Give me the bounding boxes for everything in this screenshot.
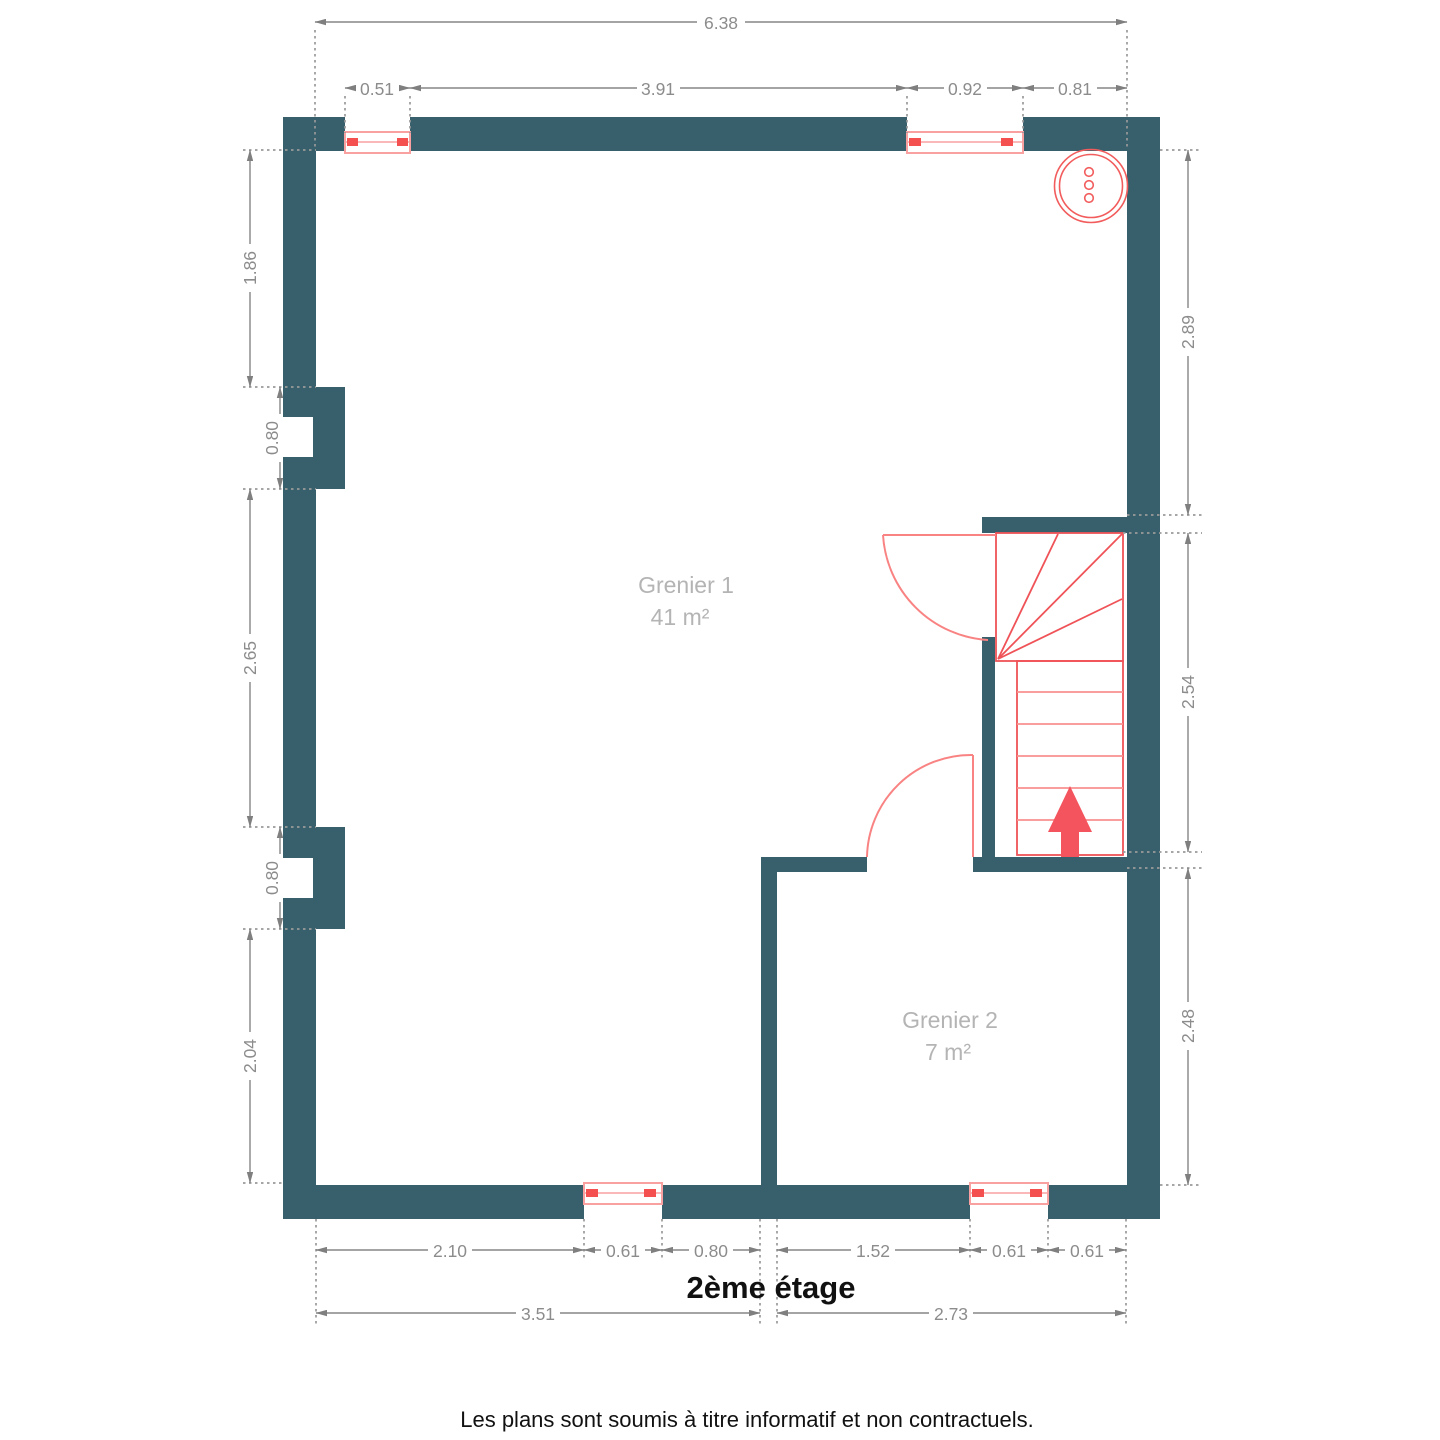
- dim-label: 2.48: [1178, 1009, 1198, 1043]
- stairs-up-arrow-icon: [1048, 786, 1092, 857]
- dimension-lines: 6.38 0.51 3.91 0.92 0.81 1.86 0.80 2.65 …: [240, 12, 1198, 1324]
- staircase: [996, 533, 1123, 857]
- extension-lines: [243, 30, 1202, 1324]
- dim-label: 0.92: [948, 79, 982, 99]
- dim-label: 2.10: [433, 1241, 467, 1261]
- window-icon-top-left: [345, 132, 410, 153]
- floor-title: 2ème étage: [687, 1270, 856, 1306]
- wall-partition-grenier: [761, 857, 777, 1219]
- dim-label-top-total: 6.38: [704, 13, 738, 33]
- wall-stair-left: [982, 637, 995, 872]
- chimney-breast-lower-recess: [281, 858, 313, 898]
- doors: [867, 535, 996, 857]
- floor-plan-page: 6.38 0.51 3.91 0.92 0.81 1.86 0.80 2.65 …: [0, 0, 1440, 1440]
- wall-bottom-segment-2: [662, 1185, 970, 1219]
- window-icon-bottom-right: [970, 1183, 1048, 1204]
- window-icon-top-right: [907, 132, 1023, 153]
- dim-label: 0.61: [992, 1241, 1026, 1261]
- room-name-grenier1: Grenier 1: [638, 572, 734, 598]
- dim-label: 0.80: [694, 1241, 728, 1261]
- dim-label: 1.52: [856, 1241, 890, 1261]
- disclaimer-text: Les plans sont soumis à titre informatif…: [460, 1407, 1034, 1433]
- wall-right: [1127, 117, 1160, 1219]
- chimney-breast-lower: [316, 827, 345, 929]
- room-labels: Grenier 1 41 m² Grenier 2 7 m²: [638, 572, 998, 1065]
- dim-label: 0.51: [360, 79, 394, 99]
- dim-label: 2.65: [240, 641, 260, 675]
- dim-label: 0.81: [1058, 79, 1092, 99]
- wall-bottom-segment-3: [1048, 1185, 1160, 1219]
- door-swing-stair: [883, 535, 996, 640]
- dim-label: 0.80: [262, 421, 282, 455]
- room-area-grenier1: 41 m²: [651, 604, 710, 630]
- wall-stair-top: [982, 517, 1127, 533]
- dim-label: 3.51: [521, 1304, 555, 1324]
- dim-label: 1.86: [240, 251, 260, 285]
- chimney-breast-upper-recess: [281, 417, 313, 457]
- flue-symbol: [1055, 150, 1128, 223]
- room-name-grenier2: Grenier 2: [902, 1007, 998, 1033]
- walls: [281, 117, 1160, 1219]
- wall-grenier2-top: [761, 857, 867, 872]
- dim-label: 0.80: [262, 861, 282, 895]
- floor-plan-drawing: 6.38 0.51 3.91 0.92 0.81 1.86 0.80 2.65 …: [0, 0, 1440, 1440]
- wall-bottom-segment-1: [283, 1185, 584, 1219]
- dim-label: 2.04: [240, 1039, 260, 1073]
- dim-label: 0.61: [606, 1241, 640, 1261]
- dim-label: 3.91: [641, 79, 675, 99]
- window-icon-bottom-left: [584, 1183, 662, 1204]
- wall-stair-bottom: [973, 857, 1127, 872]
- dim-label: 2.54: [1178, 675, 1198, 709]
- dim-label: 0.61: [1070, 1241, 1104, 1261]
- chimney-breast-upper: [316, 387, 345, 489]
- wall-left: [283, 117, 316, 1219]
- dim-label: 2.89: [1178, 315, 1198, 349]
- door-swing-grenier2: [867, 755, 973, 857]
- wall-top-segment-2: [410, 117, 907, 151]
- dim-label: 2.73: [934, 1304, 968, 1324]
- room-area-grenier2: 7 m²: [925, 1039, 971, 1065]
